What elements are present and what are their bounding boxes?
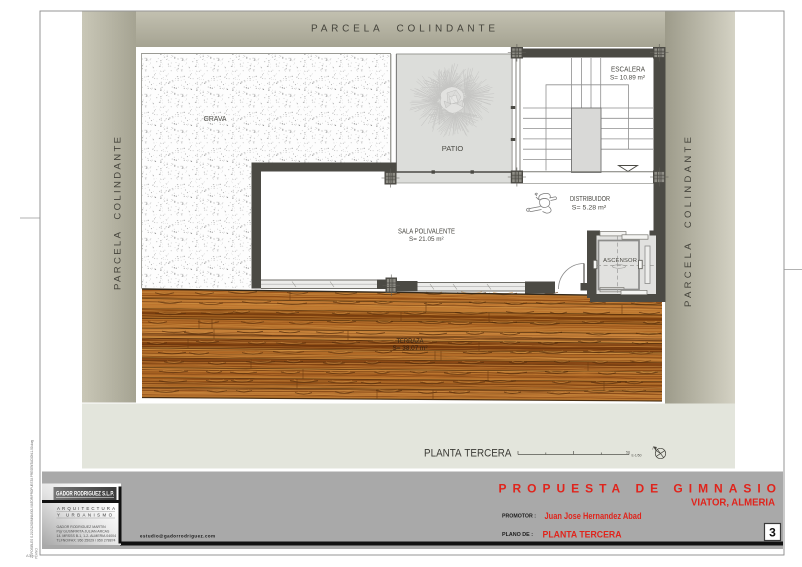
svg-text:Psj/ GUSNRRITA JULIAN ARCAS: Psj/ GUSNRRITA JULIAN ARCAS [57, 530, 111, 534]
svg-text:TLFNO/FAX: 950 25029 / 950 278: TLFNO/FAX: 950 25029 / 950 278874 [57, 539, 116, 543]
svg-text:GRAVA: GRAVA [204, 114, 227, 123]
svg-text:TERRAZA: TERRAZA [397, 338, 425, 345]
svg-text:E-1/50: E-1/50 [632, 454, 642, 458]
svg-text:PLANO DE :: PLANO DE : [502, 532, 533, 538]
svg-text:PATIO: PATIO [442, 144, 464, 153]
svg-text:PLANTA TERCERA: PLANTA TERCERA [424, 448, 512, 460]
svg-text:S= 38.07 m²: S= 38.07 m² [393, 346, 428, 352]
svg-text:A3 ==: A3 == [26, 553, 37, 558]
svg-text:S= 10.89 m²: S= 10.89 m² [610, 75, 646, 82]
svg-text:VIATOR, ALMERIA: VIATOR, ALMERIA [691, 497, 775, 509]
svg-text:ASCENSOR: ASCENSOR [603, 258, 637, 264]
svg-text:S= 5.28 m²: S= 5.28 m² [572, 205, 607, 212]
svg-text:Juan Jose Hernandez Abad: Juan Jose Hernandez Abad [545, 511, 642, 521]
svg-text:ESCALERA: ESCALERA [611, 65, 645, 74]
svg-text:GADOR RODRIGUEZ S.L.P.: GADOR RODRIGUEZ S.L.P. [56, 492, 114, 498]
svg-text:PLANTA TERCERA: PLANTA TERCERA [543, 530, 622, 541]
svg-text:estudio@gadorrodriguez.com: estudio@gadorrodriguez.com [140, 534, 215, 539]
svg-text:S= 21.05 m²: S= 21.05 m² [409, 236, 444, 243]
svg-text:Y URBANISMO: Y URBANISMO [57, 513, 113, 518]
svg-text:DISTRIBUIDOR: DISTRIBUIDOR [570, 194, 610, 203]
svg-text:PARCELA COLINDANTE: PARCELA COLINDANTE [113, 137, 124, 290]
svg-text:3: 3 [769, 526, 776, 540]
svg-text:5: 5 [626, 451, 628, 455]
svg-text:PROMOTOR :: PROMOTOR : [502, 514, 536, 520]
svg-text:SALA POLIVALENTE: SALA POLIVALENTE [398, 227, 455, 236]
svg-text:GADOR RODRIGUEZ MARTIN: GADOR RODRIGUEZ MARTIN [57, 525, 107, 529]
svg-text:21\POSIBLES S.21\2\12\GIMNASIO: 21\POSIBLES S.21\2\12\GIMNASIO-VIATOR\PR… [30, 440, 34, 558]
svg-text:14. MRSSS B-1, 1-2- ALMERIA: 14. MRSSS B-1, 1-2- ALMERIA 04004 [57, 534, 117, 538]
